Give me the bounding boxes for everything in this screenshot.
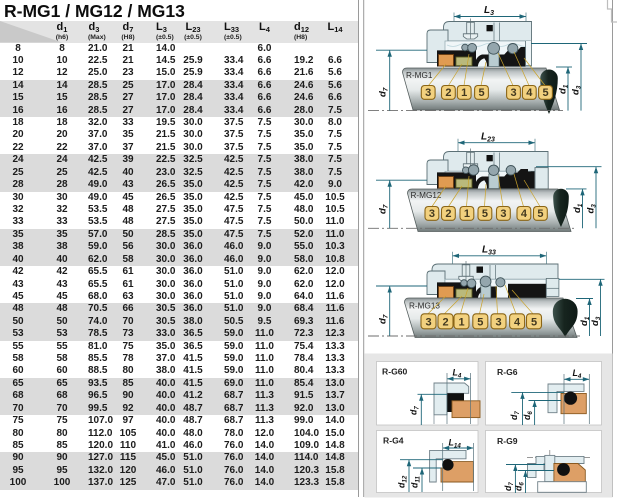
- svg-text:d3: d3: [571, 85, 583, 95]
- svg-text:3: 3: [425, 317, 431, 329]
- svg-text:1: 1: [458, 317, 464, 329]
- svg-text:1: 1: [461, 87, 467, 99]
- svg-text:5: 5: [537, 208, 543, 220]
- svg-text:L33: L33: [482, 245, 496, 257]
- svg-text:2: 2: [442, 317, 448, 329]
- svg-text:5: 5: [531, 317, 537, 329]
- svg-text:5: 5: [482, 208, 488, 220]
- svg-text:5: 5: [542, 87, 548, 99]
- svg-text:d3: d3: [586, 204, 598, 214]
- svg-text:R-G4: R-G4: [383, 436, 404, 446]
- svg-text:5: 5: [477, 317, 483, 329]
- svg-text:d7: d7: [378, 314, 390, 324]
- svg-text:L3: L3: [484, 5, 494, 17]
- svg-text:d1: d1: [558, 84, 570, 94]
- svg-text:4: 4: [526, 87, 533, 99]
- svg-text:5: 5: [478, 87, 484, 99]
- svg-text:R-G60: R-G60: [382, 367, 408, 377]
- svg-text:d7: d7: [378, 204, 390, 214]
- svg-text:2: 2: [445, 208, 451, 220]
- svg-text:3: 3: [425, 87, 431, 99]
- svg-text:L23: L23: [481, 132, 495, 144]
- svg-text:2: 2: [445, 87, 451, 99]
- svg-text:4: 4: [514, 317, 521, 329]
- svg-text:R-G6: R-G6: [497, 367, 518, 377]
- svg-text:3: 3: [495, 317, 501, 329]
- svg-text:d1: d1: [572, 203, 584, 213]
- svg-text:R-G9: R-G9: [497, 436, 518, 446]
- svg-text:4: 4: [521, 208, 528, 220]
- svg-text:3: 3: [429, 208, 435, 220]
- svg-text:R-MG1: R-MG1: [406, 71, 433, 80]
- svg-text:3: 3: [510, 87, 516, 99]
- svg-text:d3: d3: [590, 316, 602, 326]
- svg-text:3: 3: [500, 208, 506, 220]
- svg-text:d7: d7: [378, 87, 390, 97]
- svg-text:1: 1: [464, 208, 470, 220]
